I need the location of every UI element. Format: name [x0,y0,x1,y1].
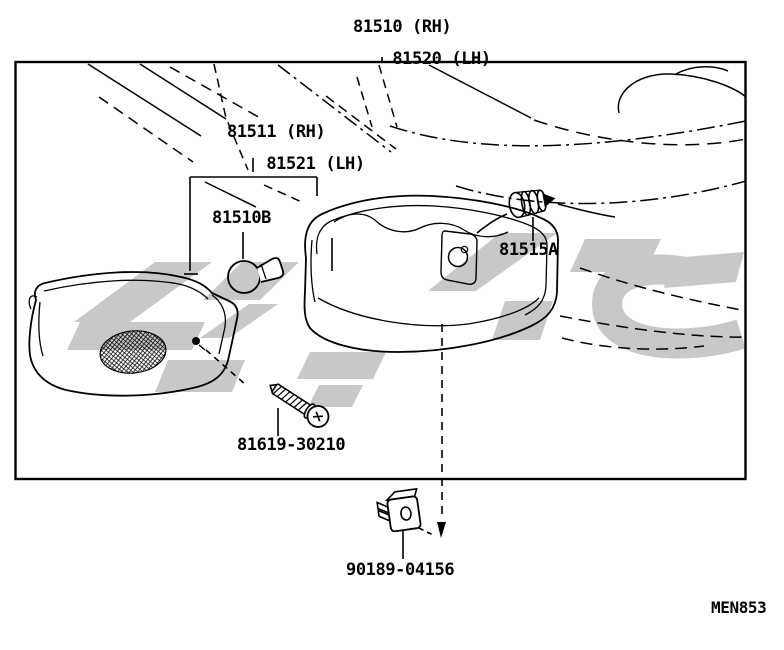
arrowhead-icon [437,522,446,538]
label-body-assembly: 81511 (RH) 81521 (LH) [227,124,365,172]
label-lamp-assembly: 81510 (RH) 81520 (LH) [353,19,491,67]
label-body-assembly-lh: 81521 (LH) [266,154,364,174]
vehicle-body-lines [88,64,746,349]
screw-hole-dot [192,337,200,345]
socket-hole [449,248,468,267]
clip-90189-icon [376,489,422,533]
diagram-line-art [0,0,784,650]
label-clip: 90189-04156 [346,562,454,578]
label-lamp-assembly-rh: 81510 (RH) [353,17,451,37]
label-body-assembly-rh: 81511 (RH) [227,122,325,142]
label-lamp-assembly-lh: 81520 (LH) [392,49,490,69]
socket-81515a-icon [507,186,557,219]
figure-code: MEN853 [711,598,766,617]
label-screw: 81619-30210 [237,437,345,453]
label-bulb: 81510B [212,210,271,226]
watermark-logo [67,233,744,407]
label-socket: 81515A [499,242,558,258]
parts-diagram: 81510 (RH) 81520 (LH) 81511 (RH) 81521 (… [0,0,784,650]
